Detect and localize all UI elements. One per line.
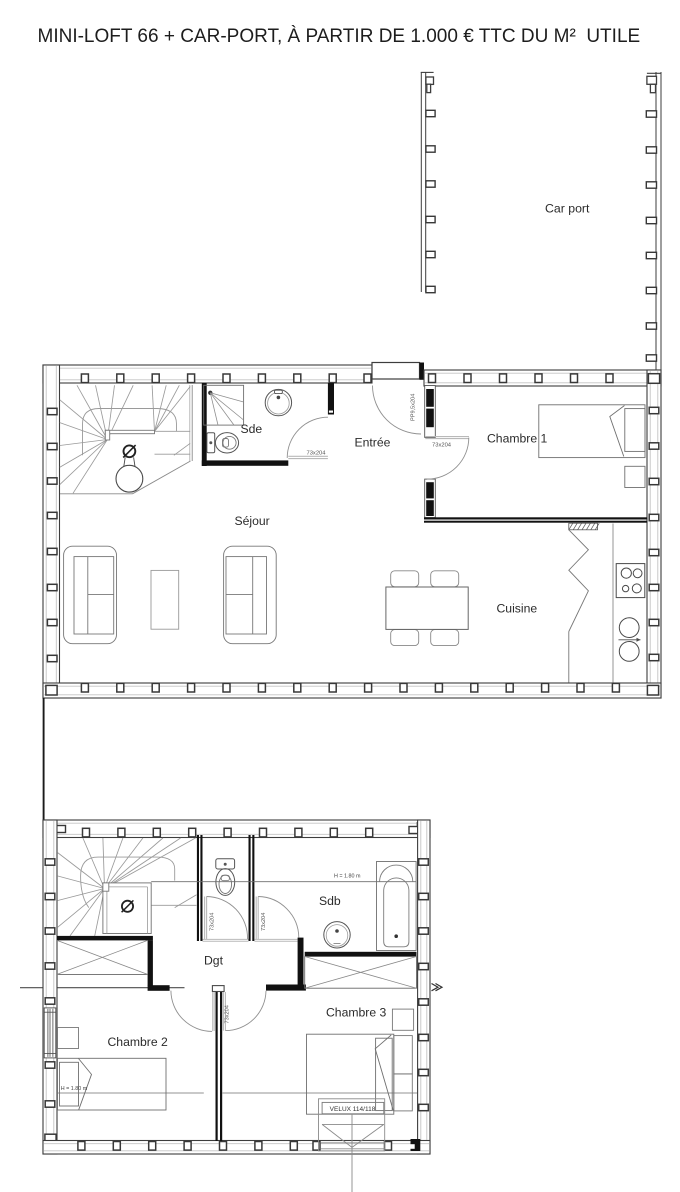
svg-text:Sde: Sde bbox=[241, 422, 263, 436]
svg-text:H = 1.80 m: H = 1.80 m bbox=[61, 1086, 88, 1092]
svg-text:73x204: 73x204 bbox=[432, 443, 452, 449]
svg-text:73x204: 73x204 bbox=[210, 913, 216, 931]
svg-text:Sdb: Sdb bbox=[319, 894, 341, 908]
svg-text:Car port: Car port bbox=[545, 202, 590, 216]
svg-text:73x204: 73x204 bbox=[225, 1005, 231, 1023]
svg-text:73x204: 73x204 bbox=[306, 451, 326, 457]
svg-text:MINI-LOFT 66 + CAR-PORT, À PAR: MINI-LOFT 66 + CAR-PORT, À PARTIR DE 1.0… bbox=[38, 26, 641, 47]
svg-text:73x204: 73x204 bbox=[261, 913, 267, 931]
svg-text:Chambre 2: Chambre 2 bbox=[108, 1035, 169, 1049]
svg-text:Entrée: Entrée bbox=[355, 436, 391, 450]
svg-text:Dgt: Dgt bbox=[204, 954, 224, 968]
svg-text:Chambre 3: Chambre 3 bbox=[326, 1006, 387, 1020]
svg-text:VELUX 114/118: VELUX 114/118 bbox=[330, 1106, 376, 1113]
svg-text:Cuisine: Cuisine bbox=[497, 602, 538, 616]
svg-text:H = 1.80 m: H = 1.80 m bbox=[334, 874, 361, 880]
svg-text:Séjour: Séjour bbox=[235, 514, 270, 528]
svg-text:PP9,5x204: PP9,5x204 bbox=[411, 394, 417, 421]
